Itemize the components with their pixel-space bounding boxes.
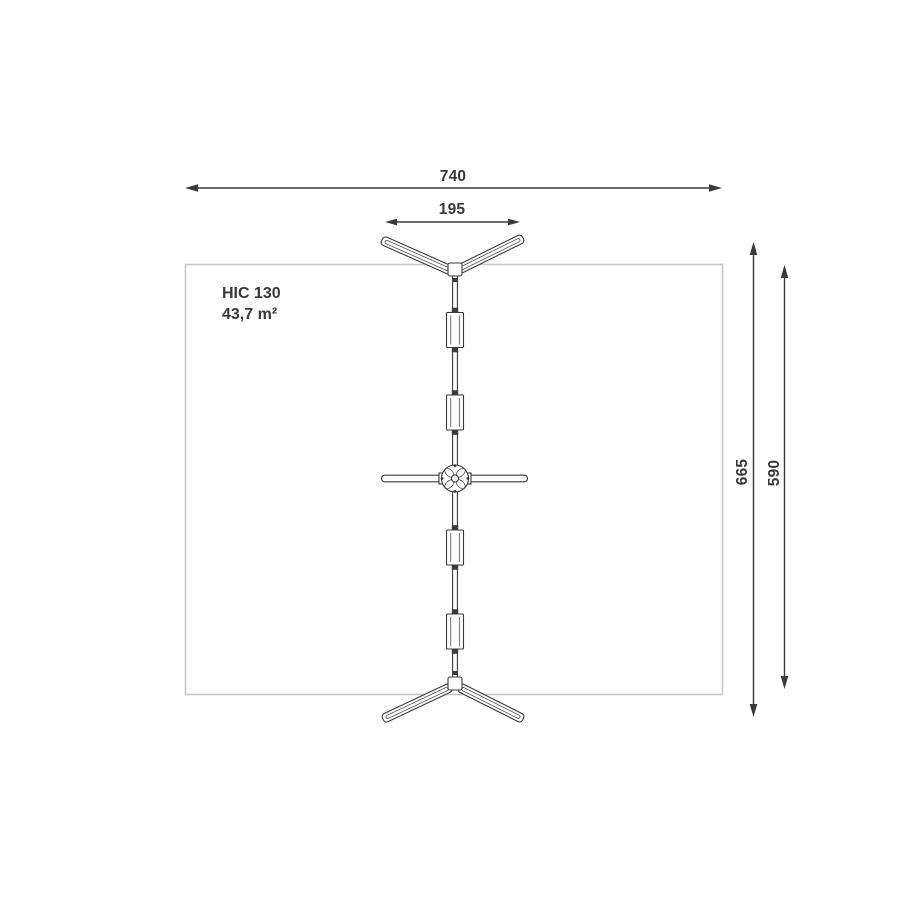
hic-label: HIC 130: [222, 285, 281, 302]
crossbar-right: [468, 475, 528, 482]
top-junction: [448, 263, 462, 276]
arm-outer: [380, 236, 454, 275]
pole-sleeve: [447, 609, 464, 654]
sleeve-nub-bottom: [452, 565, 458, 570]
crossbar-left: [382, 475, 443, 482]
arrowhead-top: [750, 242, 758, 255]
bottom-arm-right: [457, 683, 525, 723]
pole-sleeve: [447, 390, 464, 435]
dim-total-width-label: 740: [440, 168, 466, 185]
top-arm-left: [380, 236, 454, 275]
arrowhead-right: [508, 219, 520, 226]
arrowhead-left: [385, 219, 397, 226]
sleeve-nub-bottom: [452, 430, 458, 435]
joint-bolt: [453, 671, 457, 675]
sleeve-body: [447, 614, 464, 649]
dim-total-width: 740: [185, 168, 722, 192]
dim-top-span-label: 195: [439, 201, 466, 218]
hub-center: [451, 475, 458, 482]
hub-bolt: [454, 490, 457, 493]
sleeve-nub-bottom: [452, 348, 458, 353]
dim-overall-height: 665: [734, 242, 757, 717]
dim-zone-height: 590: [766, 265, 788, 689]
bottom-arm-left: [381, 683, 453, 723]
sleeve-nub-bottom: [452, 649, 458, 654]
sleeve-body: [447, 395, 464, 430]
dim-top-span: 195: [385, 201, 520, 225]
dim-overall-height-label: 665: [734, 459, 751, 486]
equipment-structure: [380, 234, 527, 723]
hub-bolt: [454, 464, 457, 467]
sleeve-nub-top: [452, 390, 458, 395]
joint-bolt: [453, 278, 457, 282]
arrowhead-right: [709, 184, 722, 192]
area-label: 43,7 m²: [222, 306, 277, 323]
sleeve-nub-top: [452, 525, 458, 530]
hub-bolt: [441, 477, 444, 480]
dim-zone-height-label: 590: [766, 460, 783, 486]
sleeve-nub-top: [452, 308, 458, 313]
arrowhead-bottom: [781, 676, 789, 689]
arrowhead-left: [185, 184, 198, 192]
sleeve-nub-top: [452, 609, 458, 614]
pole-sleeve: [447, 525, 464, 570]
arrowhead-bottom: [750, 704, 758, 717]
pole-sleeve: [447, 308, 464, 353]
technical-drawing: HIC 130 43,7 m² 740 195 665 590: [0, 0, 900, 900]
sleeve-body: [447, 313, 464, 348]
top-arm-right: [456, 234, 525, 274]
rotator-hub: [439, 464, 471, 493]
bottom-junction: [448, 677, 462, 690]
sleeve-body: [447, 530, 464, 565]
arrowhead-top: [781, 265, 789, 278]
hub-bolt: [467, 477, 470, 480]
